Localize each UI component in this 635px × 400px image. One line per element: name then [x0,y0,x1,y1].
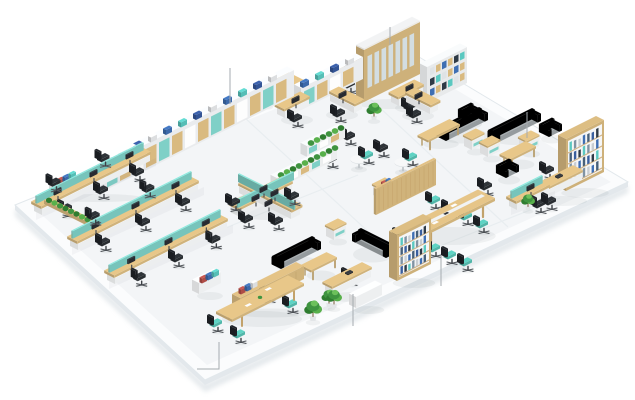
office-floorplan-canvas: Isometric 3D render of an open-plan offi… [0,0,635,400]
office-floorplan-render [0,0,635,400]
